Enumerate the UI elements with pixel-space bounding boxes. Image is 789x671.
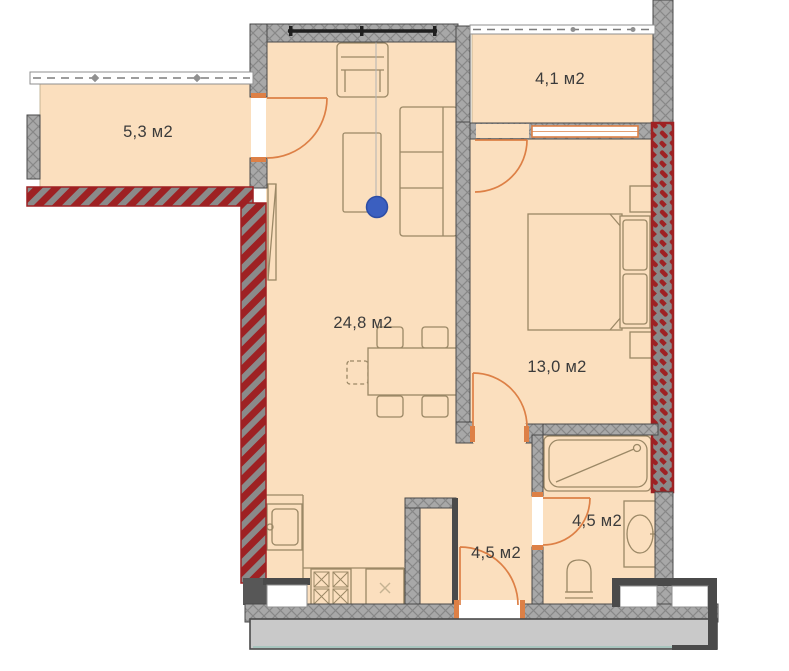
glazing-tick [631,27,636,32]
slab-bottom-edge [672,645,717,650]
wall-living-bedroom [456,122,470,428]
wall-exterior-left-horizontal [27,187,253,206]
living-window-tick [360,26,364,36]
wall-bathroom-left-upper [532,435,543,496]
door-jamb [524,426,529,442]
kitchen-window [267,585,307,607]
corner-window-left-leg [612,586,620,607]
kitchen-window-header [263,578,310,585]
closet-niche [420,506,453,604]
corridor-slab [250,619,717,649]
label-balcony-left: 5,3 м2 [123,123,173,141]
bed-headboard [620,216,650,328]
door-jamb [251,157,266,162]
label-bathroom: 4,5 м2 [572,512,622,530]
corner-window-pane [620,586,657,607]
living-window-tick [433,26,437,36]
door-jamb [532,492,543,497]
dining-chair [377,396,403,417]
room-hallway-floor [452,440,535,608]
door-jamb [470,426,475,442]
balcony-left-door-gap [251,97,266,158]
label-living: 24,8 м2 [333,314,392,332]
label-hallway: 4,5 м2 [471,544,521,562]
dining-chair [422,396,448,417]
floor-plan-drawing: 5,3 м2 4,1 м2 24,8 м2 13,0 м2 4,5 м2 4,5… [0,0,789,671]
corner-window-pane [672,586,708,607]
bathroom-door-gap [532,496,543,547]
door-jamb [251,93,266,98]
glazing-tick [571,27,576,32]
nightstand [630,332,652,358]
bedroom-door-gap [473,424,526,443]
label-bedroom: 13,0 м2 [527,358,586,376]
wall-living-balcony-top [456,26,470,122]
wall-bathroom-top [543,424,658,435]
wall-exterior-right [652,123,673,492]
wall-exterior-left-vertical [241,203,266,583]
corner-window-right-leg [708,586,717,650]
nightstand [630,186,652,212]
wall-bathroom-right [655,492,673,618]
wall-bathroom-left-lower [532,547,543,608]
wall-balcony-top-right [653,0,673,123]
corner-window-header [612,578,717,586]
floor-plan: 5,3 м2 4,1 м2 24,8 м2 13,0 м2 4,5 м2 4,5… [0,0,789,671]
label-balcony-top: 4,1 м2 [535,70,585,88]
living-window-tick [289,26,293,36]
wall-living-left-lower [250,158,267,188]
wall-closet-top [405,498,456,508]
position-marker[interactable] [367,197,388,218]
wall-closet-left [405,508,420,608]
wall-living-left-upper [250,24,267,97]
dining-table [368,348,457,395]
dining-chair [422,327,448,348]
balcony-top-door-gap [476,124,529,138]
wall-living-top [250,24,458,42]
door-jamb [532,545,543,550]
wall-balcony-left-stub [27,115,40,179]
dining-chair-dashed [347,361,368,384]
bed-mattress [528,214,622,330]
wall-closet-right [452,498,458,608]
